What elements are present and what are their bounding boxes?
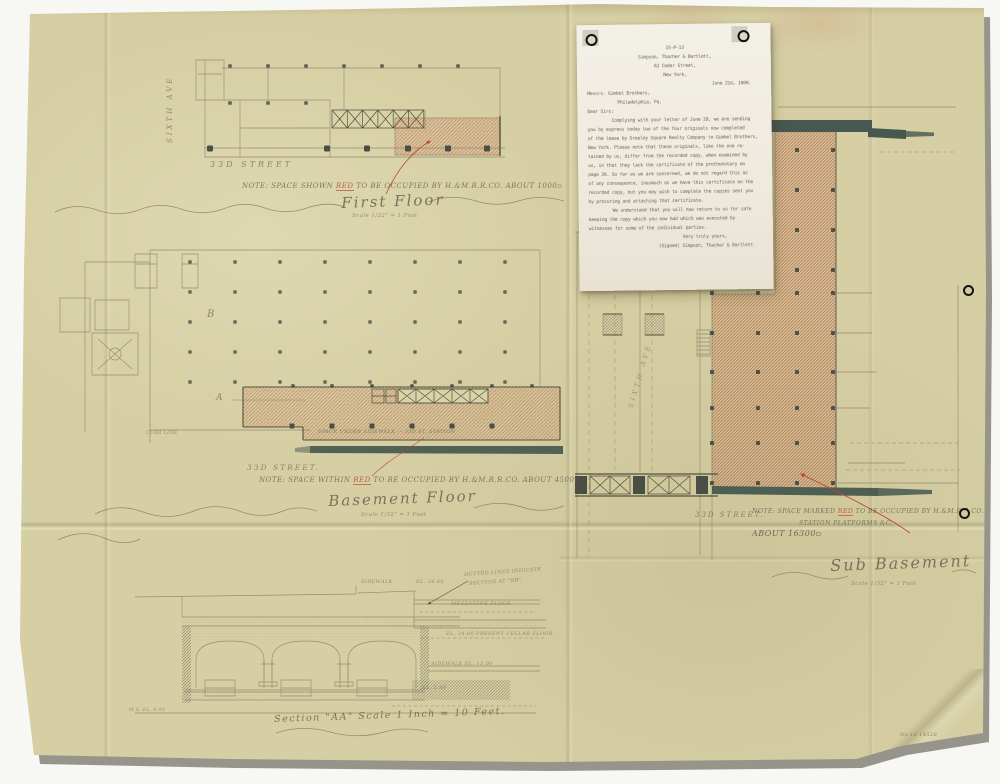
sub-basement-note-line3: ABOUT 16300▫ [752, 529, 822, 538]
note-text: NOTE: SPACE SHOWN [242, 182, 336, 190]
note-text: TO BE OCCUPIED BY H.&M.R.R.CO. ABOUT 450… [371, 476, 580, 484]
basement-label-b: B [207, 309, 214, 320]
sheet-grommet-lower [959, 508, 970, 519]
note-text: NOTE: SPACE WITHIN [259, 476, 353, 484]
basement-hatch-label: SPACE UNDER SIDEWALK — 33D ST. STATION [318, 429, 455, 435]
letter-eyelet-right [737, 30, 749, 42]
first-floor-street-columns [207, 146, 490, 152]
sub-basement-scale: Scale 1/32" = 1 Foot [851, 581, 916, 587]
first-floor-title: First Floor [341, 190, 445, 212]
basement-street-label: 33D STREET. [247, 463, 320, 472]
note-red-word: RED [353, 476, 371, 485]
note-red-word: RED [336, 182, 354, 191]
sheet-corner-number: No.16 14528 [900, 732, 937, 738]
section-sidewalk-label: SIDEWALK [361, 579, 393, 585]
basement-scale: Scale 1/32" = 1 Foot [361, 512, 426, 518]
corner-pin-mark [25, 36, 29, 40]
basement-note: NOTE: SPACE WITHIN RED TO BE OCCUPIED BY… [259, 476, 580, 484]
note-text: NOTE: SPACE MARKED [752, 508, 838, 515]
letter-line: (Signed) Simpson, Thacher & Bartlett [589, 241, 765, 252]
section-datum-label: M.S. EL. 0.00 [129, 708, 165, 713]
basement-label-a: A [216, 393, 223, 403]
section-elevation-top: EL. 34.60 [416, 579, 444, 585]
letter-eyelet-left [585, 34, 597, 46]
first-floor-avenue-label: SIXTH AVE [166, 76, 174, 143]
sub-basement-note-line1: NOTE: SPACE MARKED RED TO BE OCCUPIED BY… [752, 508, 984, 515]
scanned-drawing-photo: SIXTH AVE 33D STREET NOTE: SPACE SHOWN R… [0, 0, 1000, 784]
drawing-sheet: SIXTH AVE 33D STREET NOTE: SPACE SHOWN R… [0, 0, 1000, 784]
basement-columns [188, 260, 507, 384]
note-text: TO BE OCCUPIED BY H.&M.R.R.CO. ABOUT 100… [354, 182, 563, 190]
plan-linework [0, 0, 1000, 784]
section-cellar-label: EL. 24.00 PRESENT CELLAR FLOOR [446, 631, 553, 637]
first-floor-scale: Scale 1/32" = 1 Foot [352, 213, 417, 219]
first-floor-columns [228, 64, 460, 68]
basement-curb-label: CURB LINE [146, 431, 178, 436]
note-red-word: RED [838, 508, 853, 516]
section-elevation-low: EL. 5.00 [422, 685, 446, 691]
pinned-letter: 15-P-13Simpson, Thacher & Bartlett,62 Ce… [576, 23, 773, 291]
letter-body: 15-P-13Simpson, Thacher & Bartlett,62 Ce… [576, 23, 773, 252]
section-sidewalk2-label: SIDEWALK EL. 12.00 [431, 661, 493, 667]
first-floor-street-label: 33D STREET [210, 160, 293, 169]
sheet-grommet-upper [963, 285, 974, 296]
column-footings [575, 476, 708, 494]
sub-basement-note-line2: STATION PLATFORMS &C. [799, 520, 893, 527]
section-mezzanine-label: MEZZANINE FLOOR [451, 601, 511, 607]
first-floor-note: NOTE: SPACE SHOWN RED TO BE OCCUPIED BY … [242, 182, 563, 190]
